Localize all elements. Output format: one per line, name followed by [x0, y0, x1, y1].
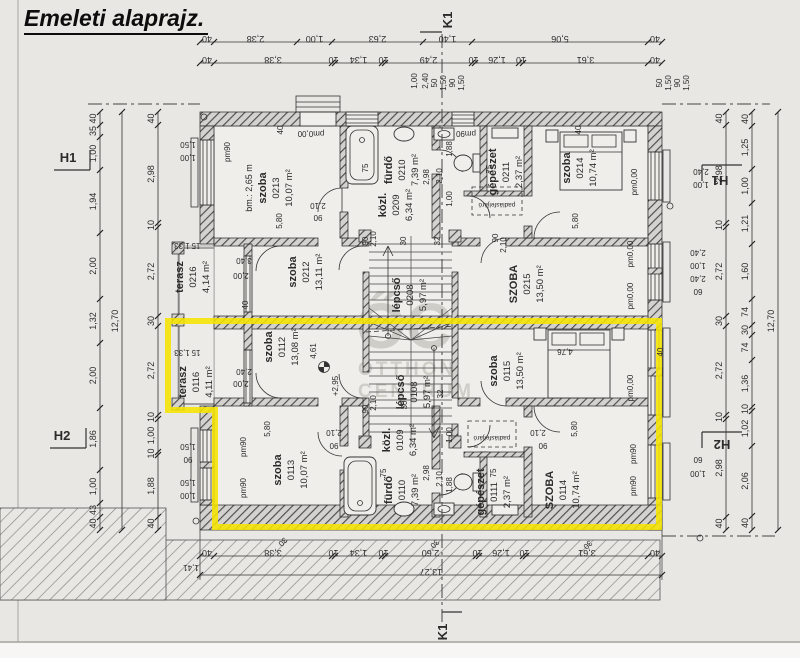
svg-text:4,14 m²: 4,14 m²	[201, 261, 212, 293]
level-label: pm0,00	[626, 282, 635, 309]
floor-plan-sheet: Emeleti alaprajz.	[0, 0, 800, 658]
svg-text:5,97 m²: 5,97 m²	[418, 279, 429, 311]
dim-label: 3,40	[236, 256, 252, 265]
attic-hatch-label: padlásfeljáró	[478, 201, 515, 208]
dim-label: 35	[88, 126, 98, 136]
toilet-upper	[473, 154, 480, 172]
dim-label: 32	[436, 389, 445, 398]
dim-chain-right-inner: 402,98102,72302,72102,9840	[714, 109, 729, 533]
level-label: pm0,00	[630, 168, 639, 195]
svg-text:10,07 m²: 10,07 m²	[299, 451, 310, 489]
window-label: pm90	[239, 436, 248, 457]
svg-text:5,97 m²: 5,97 m²	[422, 376, 433, 408]
dim-label: 40	[202, 548, 212, 558]
dim-chain-right-outer: 401,251,001,211,607430741,36101,022,0640	[740, 109, 755, 533]
dim-label: 40	[202, 34, 212, 44]
dim-label: 75	[361, 163, 370, 172]
dim-label: 2,72	[714, 263, 724, 281]
svg-text:7,39 m²: 7,39 m²	[410, 154, 421, 186]
dim-label: 1,88	[445, 141, 454, 157]
window-dim: 1,50	[180, 478, 196, 487]
dim-label: 2,49	[420, 55, 438, 65]
dim-label: 1,00	[445, 191, 454, 207]
svg-text:szoba: szoba	[488, 355, 500, 387]
svg-text:0108: 0108	[409, 381, 420, 402]
dim-label: 2,72	[146, 263, 156, 281]
window-dim: 1,00	[690, 469, 706, 478]
window-dim: 1,50	[180, 140, 196, 149]
window-dim: 2,40	[690, 274, 706, 283]
dim-chain-right-overall: 12,70	[766, 109, 781, 533]
floor-plan-drawing: ŐC OTTHON CENTRUM	[0, 0, 800, 658]
dim-label: 10	[714, 412, 724, 422]
window-dim: 90	[183, 455, 192, 464]
dim-label: 4,61	[309, 343, 318, 359]
window-dim: 1,00	[180, 491, 196, 500]
window-dim: 2,40	[693, 167, 709, 176]
door-dim: 2,10	[530, 428, 546, 437]
dim-label: 40	[146, 518, 156, 528]
dim-label: 4,76	[557, 347, 573, 356]
dim-chain-top-inner: 403,38101,34102,49101,26103,6140	[197, 55, 665, 66]
window-label: pm90	[629, 443, 638, 464]
dim-label: 40	[714, 113, 724, 123]
window-label: pm90	[239, 477, 248, 498]
window-dim: 60	[693, 455, 702, 464]
dim-label: 3,61	[577, 55, 595, 65]
door-dim: 90	[538, 441, 547, 450]
dim-label: 10	[146, 412, 156, 422]
door-dim: 2,10	[326, 428, 342, 437]
dim-chain-left-overall: 12,70	[110, 109, 125, 533]
svg-text:szoba: szoba	[263, 331, 275, 363]
svg-text:0115: 0115	[502, 361, 513, 381]
dim-label: 40	[241, 300, 250, 309]
svg-text:0211: 0211	[501, 162, 512, 182]
dim-label: 40	[276, 125, 285, 134]
door-dim: 90	[329, 441, 338, 450]
dim-label: 40	[574, 125, 583, 134]
dim-label: 1,02	[740, 420, 750, 438]
dim-label: 1,00	[740, 177, 750, 195]
door-dim: 90	[491, 233, 500, 242]
dim-label: 10	[468, 55, 478, 65]
watermark-line1: OTTHON	[358, 359, 456, 380]
window-label: pm90	[629, 475, 638, 496]
dim-chain-top-outer: 402,381,002,631,405,0640	[197, 34, 665, 45]
dim-label: 30	[714, 316, 724, 326]
level-label: pm0,00	[297, 129, 324, 138]
svg-text:0113: 0113	[286, 460, 297, 480]
window-dim: 2,40	[690, 248, 706, 257]
svg-text:0215: 0215	[522, 273, 533, 294]
washbasin-upper	[394, 127, 414, 141]
svg-text:0210: 0210	[397, 159, 408, 180]
dim-label: 75	[379, 468, 388, 477]
dim-label: 1,40	[439, 34, 457, 44]
dim-label: 90	[448, 78, 457, 87]
svg-text:közl.: közl.	[377, 193, 389, 217]
svg-text:6,34 m²: 6,34 m²	[404, 189, 415, 221]
door-dim: 90	[361, 404, 370, 413]
dim-label: 10	[714, 220, 724, 230]
dim-chain-left-inner: 402,98102,72302,72101,00101,8840	[146, 109, 161, 533]
dim-label: 50	[430, 78, 439, 87]
level-value: +2,95	[331, 375, 340, 396]
corner-mark	[193, 518, 199, 524]
dim-label: 5,80	[571, 213, 580, 229]
svg-text:0109: 0109	[395, 429, 406, 450]
axis-label-h2-left: H2	[54, 428, 71, 443]
dim-label: 3,38	[264, 55, 282, 65]
dim-label: 1,50	[682, 75, 691, 91]
svg-text:0216: 0216	[188, 266, 199, 287]
svg-text:6,34 m²: 6,34 m²	[408, 424, 419, 456]
axis-label-h1-left: H1	[60, 150, 77, 165]
svg-text:13,50 m²: 13,50 m²	[535, 265, 546, 303]
dim-label: 5,80	[263, 421, 272, 437]
dim-label: 1,00	[88, 145, 98, 163]
dim-label: 10	[328, 55, 338, 65]
axis-label-k1-bottom: K1	[435, 624, 450, 641]
dim-label: 2,40	[236, 367, 252, 376]
svg-text:szoba: szoba	[561, 152, 573, 184]
dim-label: 5,80	[275, 213, 284, 229]
dim-label: 10	[378, 55, 388, 65]
svg-text:0214: 0214	[575, 157, 586, 178]
dim-label: 1,25	[740, 139, 750, 157]
dim-label: 15	[191, 348, 200, 357]
svg-text:7,39 m²: 7,39 m²	[410, 474, 421, 506]
dim-label: 2,98	[714, 165, 724, 183]
dim-label: 13,27	[420, 567, 443, 577]
svg-text:2,37 m²: 2,37 m²	[514, 156, 525, 188]
svg-text:bm.: 2,65 m: bm.: 2,65 m	[244, 164, 254, 212]
window-label: pm90	[223, 141, 232, 162]
svg-text:13,08 m²: 13,08 m²	[290, 328, 301, 366]
dim-label: 1,86	[88, 430, 98, 448]
dim-label: 2,00	[233, 379, 249, 388]
svg-text:2,37 m²: 2,37 m²	[502, 476, 513, 508]
dim-label: 1,21	[740, 215, 750, 233]
window-dim: 1,50	[180, 442, 196, 451]
svg-text:0212: 0212	[301, 261, 312, 282]
dim-label: 2,72	[146, 362, 156, 380]
dim-label: 2,10	[435, 168, 444, 184]
dim-label: 40	[650, 55, 660, 65]
dim-label: 15	[191, 241, 200, 250]
svg-text:0213: 0213	[271, 177, 282, 198]
window-dim: 1,00	[180, 153, 196, 162]
dim-label: 30	[740, 325, 750, 335]
dim-label: 10	[328, 548, 338, 558]
level-marker	[319, 362, 330, 373]
svg-text:terasz: terasz	[174, 261, 186, 293]
svg-text:0116: 0116	[191, 372, 202, 392]
axis-label-k1-top: K1	[440, 12, 455, 29]
dim-label: 10	[516, 55, 526, 65]
svg-text:SZOBA: SZOBA	[544, 471, 556, 510]
dim-label: 1,34	[350, 55, 368, 65]
dim-label: 1,26	[488, 55, 506, 65]
dim-label: 1,50	[664, 75, 673, 91]
dim-label: 40	[740, 518, 750, 528]
svg-text:13,11 m²: 13,11 m²	[314, 254, 325, 291]
svg-text:10,74 m²: 10,74 m²	[571, 471, 582, 509]
dim-label: 12,70	[110, 310, 120, 333]
svg-text:0111: 0111	[489, 482, 500, 502]
dim-label: 40	[650, 548, 660, 558]
dim-label: 40	[202, 55, 212, 65]
dim-label: 2,00	[233, 271, 249, 280]
level-label: pm0,00	[626, 240, 635, 267]
dim-label: 40	[656, 347, 665, 356]
dim-label: 1,00	[445, 427, 454, 443]
dim-label: 10	[378, 548, 388, 558]
dim-label: 2,00	[88, 257, 98, 275]
dim-label: 1,36	[740, 375, 750, 393]
svg-text:szoba: szoba	[272, 454, 284, 486]
dim-label: 1,33	[174, 348, 190, 357]
dim-label: 50	[655, 78, 664, 87]
window-dim: 1,00	[690, 261, 706, 270]
dim-label: 32	[433, 236, 442, 245]
svg-text:szoba: szoba	[287, 256, 299, 288]
svg-text:fürdő: fürdő	[383, 156, 395, 184]
dim-label: 30	[146, 316, 156, 326]
door-dim: 90	[313, 213, 322, 222]
svg-text:0208: 0208	[405, 284, 416, 305]
dim-label: 10	[146, 448, 156, 458]
dim-label: 2,72	[714, 362, 724, 380]
dim-label: 1,50	[457, 75, 466, 91]
dim-label: 1,26	[492, 548, 510, 558]
dim-label: 2,06	[740, 472, 750, 490]
dim-label: 10	[519, 548, 529, 558]
dim-label: 2,98	[422, 465, 431, 481]
dim-label: 2,38	[247, 34, 265, 44]
dim-label: 30	[400, 400, 409, 409]
dim-label: 74	[740, 307, 750, 317]
dim-label: 10	[472, 548, 482, 558]
dim-label: 1,60	[740, 263, 750, 281]
dim-label: 1,94	[88, 193, 98, 211]
dim-label: 40	[650, 34, 660, 44]
dim-label: 90	[673, 78, 682, 87]
svg-text:10,74 m²: 10,74 m²	[588, 149, 599, 187]
level-label: pm0,00	[626, 374, 635, 401]
dim-label: 74	[740, 342, 750, 352]
dim-label: 10	[146, 220, 156, 230]
door-dim: 90	[361, 236, 370, 245]
dim-label: 2,00	[88, 367, 98, 385]
axis-label-h2-right: H2	[714, 437, 731, 452]
dim-label: 2,98	[146, 165, 156, 183]
dim-label: 2,98	[714, 459, 724, 477]
svg-text:4,11 m²: 4,11 m²	[204, 366, 215, 398]
dim-label: 40	[88, 113, 98, 123]
dim-label: 10	[740, 404, 750, 414]
svg-text:szoba: szoba	[257, 172, 269, 204]
svg-text:SZOBA: SZOBA	[508, 265, 520, 304]
svg-text:0209: 0209	[391, 194, 402, 215]
svg-text:10,07 m²: 10,07 m²	[284, 169, 295, 207]
dim-label: 75	[485, 164, 494, 173]
window-label: pm90	[455, 129, 476, 138]
mech-equipment-upper	[492, 128, 518, 138]
dim-label: 40	[714, 518, 724, 528]
dim-label: 40	[740, 114, 750, 124]
dim-label: 30	[399, 236, 408, 245]
door-dim: 2,10	[499, 237, 508, 253]
dim-chain-left-outer: 40351,001,942,001,322,001,861,004340	[88, 109, 103, 533]
dim-label: 1,33	[174, 241, 190, 250]
dim-label: 2,98	[422, 169, 431, 185]
svg-text:fürdő: fürdő	[383, 476, 395, 504]
svg-text:0112: 0112	[277, 337, 288, 357]
dim-label: 40	[88, 518, 98, 528]
dim-label: 5,80	[570, 421, 579, 437]
corner-mark	[667, 203, 673, 209]
dim-label: 1,50	[439, 75, 448, 91]
dim-label: 1,00	[410, 73, 419, 89]
dim-label: 12,70	[766, 310, 776, 333]
dim-label: 2,40	[421, 73, 430, 89]
dim-label: 1,00	[306, 34, 324, 44]
door-dim: 2,10	[369, 395, 378, 411]
svg-text:lépcső: lépcső	[391, 277, 403, 312]
window-dim: 60	[693, 287, 702, 296]
dim-label: 43	[88, 505, 98, 515]
dim-chain-bottom: 403,38101,34102,60101,26103,6140	[197, 548, 665, 559]
svg-text:13,50 m²: 13,50 m²	[515, 352, 526, 390]
dim-label: 1,00	[88, 478, 98, 496]
dim-label: 1,88	[445, 477, 454, 493]
dim-label: 1,00	[146, 427, 156, 445]
dim-label: 1,88	[146, 477, 156, 495]
dim-label: 1,41	[183, 563, 199, 572]
window-dim: 1,00	[693, 180, 709, 189]
dim-label: 40	[146, 113, 156, 123]
door-dim: 2,10	[369, 231, 378, 247]
attic-hatch-label: padlásfeljáró	[473, 434, 510, 441]
dim-label: 5,06	[551, 34, 569, 44]
dim-label: 3,38	[264, 548, 282, 558]
svg-text:gépészet: gépészet	[475, 468, 487, 515]
dim-label: 1,32	[88, 312, 98, 330]
dim-label: 2,10	[435, 471, 444, 487]
svg-text:terasz: terasz	[177, 366, 189, 398]
svg-text:0114: 0114	[558, 480, 569, 500]
svg-text:0110: 0110	[397, 480, 408, 500]
svg-text:közl.: közl.	[381, 428, 393, 452]
door-dim: 2,10	[310, 201, 326, 210]
dim-label: 2,63	[369, 34, 387, 44]
dim-label: 75	[489, 468, 498, 477]
dim-label: 1,34	[350, 548, 368, 558]
